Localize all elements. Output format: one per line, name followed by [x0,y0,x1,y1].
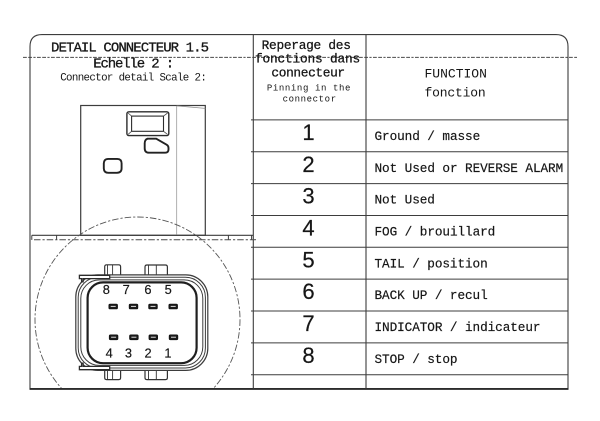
svg-text:7: 7 [302,311,314,336]
svg-text:INDICATOR / indicateur: INDICATOR / indicateur [375,320,541,335]
svg-text:1: 1 [164,346,171,361]
svg-text:connector: connector [283,94,337,104]
svg-text:FUNCTION: FUNCTION [425,67,487,82]
svg-text:2: 2 [144,346,151,361]
svg-text:8: 8 [103,282,110,297]
svg-text:6: 6 [144,282,151,297]
svg-text:6: 6 [302,279,314,304]
svg-text:5: 5 [165,282,172,297]
svg-text:Not Used: Not Used [375,193,435,208]
svg-text:Reperage des: Reperage des [262,38,351,53]
svg-text:fonction: fonction [425,85,486,100]
svg-text:4: 4 [106,346,113,361]
svg-text:Connector detail Scale 2:: Connector detail Scale 2: [60,72,207,84]
svg-text:BACK UP / recul: BACK UP / recul [375,288,488,303]
svg-text:Pinning in the: Pinning in the [267,84,351,94]
svg-text:2: 2 [302,152,314,177]
svg-text:4: 4 [302,216,314,241]
svg-text:8: 8 [302,343,314,368]
svg-text:Not Used or REVERSE ALARM: Not Used or REVERSE ALARM [375,161,564,176]
svg-text:TAIL / position: TAIL / position [375,256,488,271]
svg-text:3: 3 [302,184,314,209]
svg-text:connecteur: connecteur [271,66,345,81]
svg-text:5: 5 [302,247,314,272]
svg-text:Echelle 2 :: Echelle 2 : [93,57,174,73]
svg-text:3: 3 [125,346,132,361]
svg-text:STOP / stop: STOP / stop [375,352,458,367]
svg-text:Ground / masse: Ground / masse [375,129,481,144]
svg-text:fonctions dans: fonctions dans [255,52,360,67]
svg-text:1: 1 [302,120,314,145]
svg-text:7: 7 [123,282,130,297]
svg-text:DETAIL CONNECTEUR 1.5: DETAIL CONNECTEUR 1.5 [51,40,209,56]
svg-text:FOG / brouillard: FOG / brouillard [375,225,496,240]
